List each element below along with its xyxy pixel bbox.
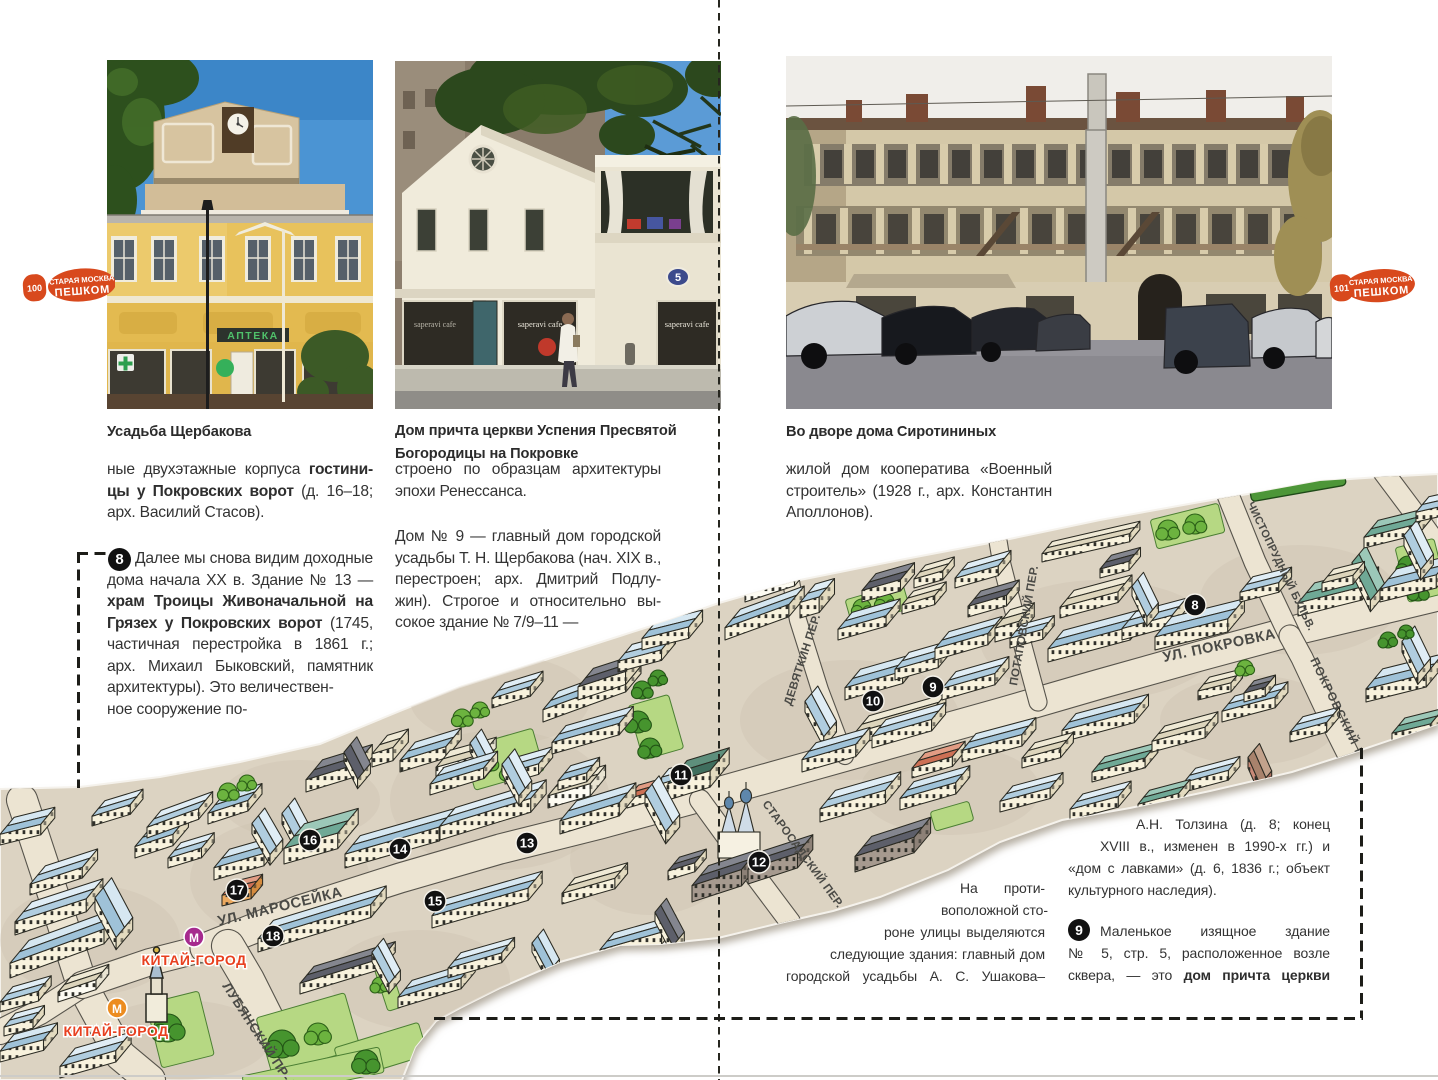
svg-text:101: 101 — [1334, 283, 1350, 294]
svg-text:13: 13 — [520, 836, 534, 851]
svg-text:М: М — [112, 1002, 122, 1016]
svg-text:saperavi cafe: saperavi cafe — [518, 319, 563, 329]
svg-text:11: 11 — [674, 768, 688, 783]
svg-text:14: 14 — [393, 842, 408, 857]
svg-text:КИТАЙ-ГОРОД: КИТАЙ-ГОРОД — [63, 1022, 168, 1039]
svg-text:16: 16 — [303, 833, 317, 848]
svg-text:15: 15 — [428, 894, 442, 909]
svg-text:saperavi cafe: saperavi cafe — [665, 319, 710, 329]
svg-text:18: 18 — [266, 929, 280, 944]
svg-text:5: 5 — [675, 272, 681, 284]
svg-text:АПТЕКА: АПТЕКА — [227, 330, 278, 342]
svg-text:saperavi cafe: saperavi cafe — [414, 320, 456, 329]
svg-text:М: М — [189, 931, 199, 945]
svg-text:10: 10 — [866, 694, 880, 709]
svg-text:8: 8 — [1191, 598, 1198, 613]
svg-text:17: 17 — [230, 883, 244, 898]
svg-text:12: 12 — [752, 855, 766, 870]
svg-text:100: 100 — [27, 283, 43, 294]
svg-text:КИТАЙ-ГОРОД: КИТАЙ-ГОРОД — [141, 951, 246, 968]
svg-text:9: 9 — [929, 680, 936, 695]
